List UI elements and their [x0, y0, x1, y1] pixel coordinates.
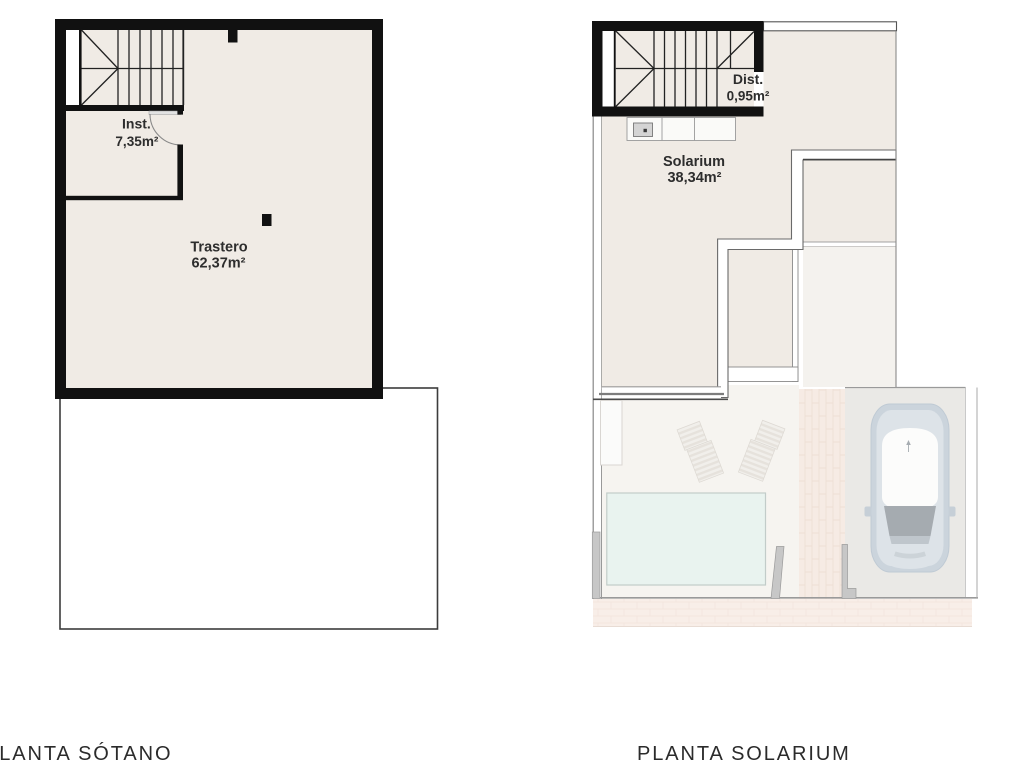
svg-text:0,95m²: 0,95m² [727, 89, 770, 104]
svg-text:Solarium: Solarium [663, 154, 725, 170]
svg-text:Inst.: Inst. [122, 116, 151, 132]
svg-text:38,34m²: 38,34m² [667, 170, 721, 186]
svg-text:PLANTA SÓTANO: PLANTA SÓTANO [0, 742, 172, 765]
svg-text:PLANTA SOLARIUM: PLANTA SOLARIUM [637, 743, 851, 765]
svg-text:7,35m²: 7,35m² [115, 134, 159, 149]
svg-text:Dist.: Dist. [733, 71, 763, 87]
svg-text:Trastero: Trastero [190, 239, 247, 255]
svg-text:62,37m²: 62,37m² [191, 256, 245, 272]
